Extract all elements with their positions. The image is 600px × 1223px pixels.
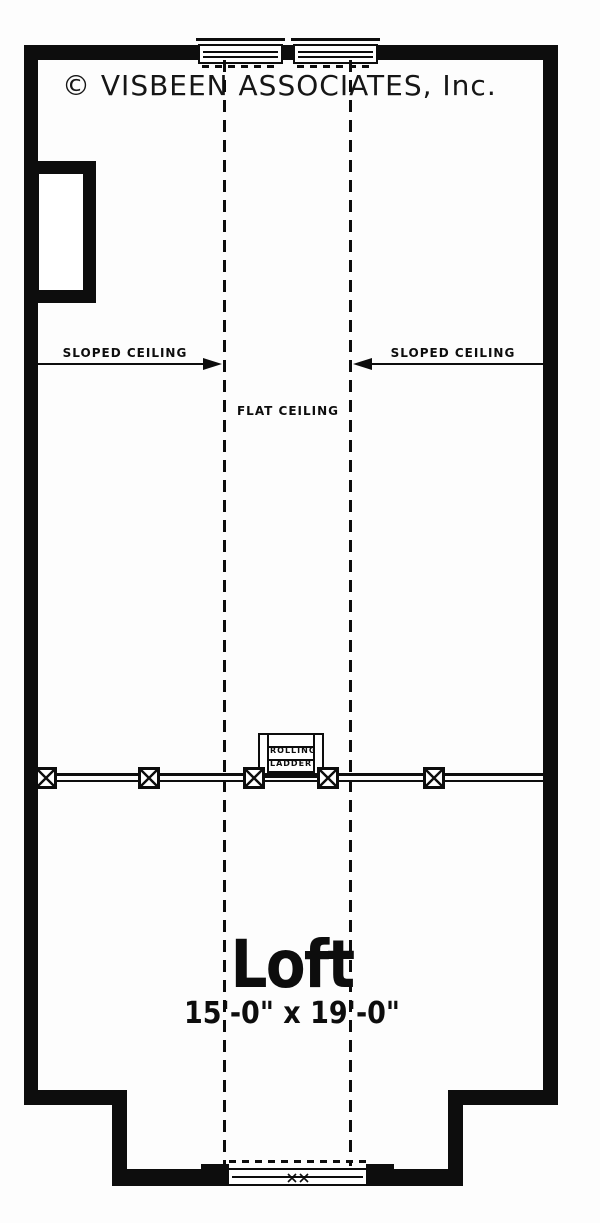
railing-post	[423, 767, 445, 789]
wall-step-right-horizontal	[448, 1090, 558, 1105]
window-casing-left	[196, 38, 285, 41]
ladder-label: ROLLING LADDER	[270, 744, 312, 770]
room-dimensions: 15'-0" x 19'-0"	[157, 997, 427, 1031]
room-name: Loft	[160, 930, 424, 1000]
window-jamb-left	[201, 1164, 229, 1186]
chimney	[26, 161, 96, 303]
rolling-ladder: ROLLING LADDER	[258, 733, 324, 778]
ladder-rail-right	[313, 735, 315, 776]
ladder-label-line2: LADDER	[270, 757, 312, 770]
arrowhead-right-icon	[203, 358, 222, 370]
sloped-ceiling-leader-left	[38, 363, 206, 365]
x-post-icon	[141, 770, 157, 786]
window-x-icon	[299, 1173, 309, 1183]
sloped-ceiling-label-right: SLOPED CEILING	[378, 346, 528, 360]
window-top-left	[198, 44, 283, 64]
railing-post	[243, 767, 265, 789]
window-casing-right	[291, 38, 380, 41]
x-post-icon	[38, 770, 54, 786]
wall-top	[24, 45, 558, 60]
flat-ceiling-label: FLAT CEILING	[225, 404, 351, 418]
copyright-text: © VISBEEN ASSOCIATES, Inc.	[62, 69, 497, 102]
wall-right	[543, 45, 558, 1105]
window-sill-dashes-left	[202, 65, 279, 68]
x-post-icon	[246, 770, 262, 786]
ladder-label-line1: ROLLING	[270, 744, 312, 757]
window-top-right	[293, 44, 378, 64]
x-post-icon	[320, 770, 336, 786]
railing-post	[138, 767, 160, 789]
x-post-icon	[426, 770, 442, 786]
railing-top-line	[38, 773, 543, 776]
ladder-rail-left	[267, 735, 269, 776]
window-x-icon	[287, 1173, 297, 1183]
railing-post	[317, 767, 339, 789]
floorplan-page: © VISBEEN ASSOCIATES, Inc. SLOPED CEILIN…	[0, 0, 600, 1223]
window-head-dashes-bottom	[229, 1160, 366, 1163]
window-sill-dashes-right	[297, 65, 374, 68]
wall-bottom-left	[112, 1169, 215, 1186]
window-bottom	[227, 1168, 368, 1186]
sloped-ceiling-label-left: SLOPED CEILING	[40, 346, 210, 360]
sloped-ceiling-leader-right	[370, 363, 543, 365]
arrowhead-left-icon	[353, 358, 372, 370]
railing-bottom-line	[38, 780, 543, 782]
railing-post	[35, 767, 57, 789]
